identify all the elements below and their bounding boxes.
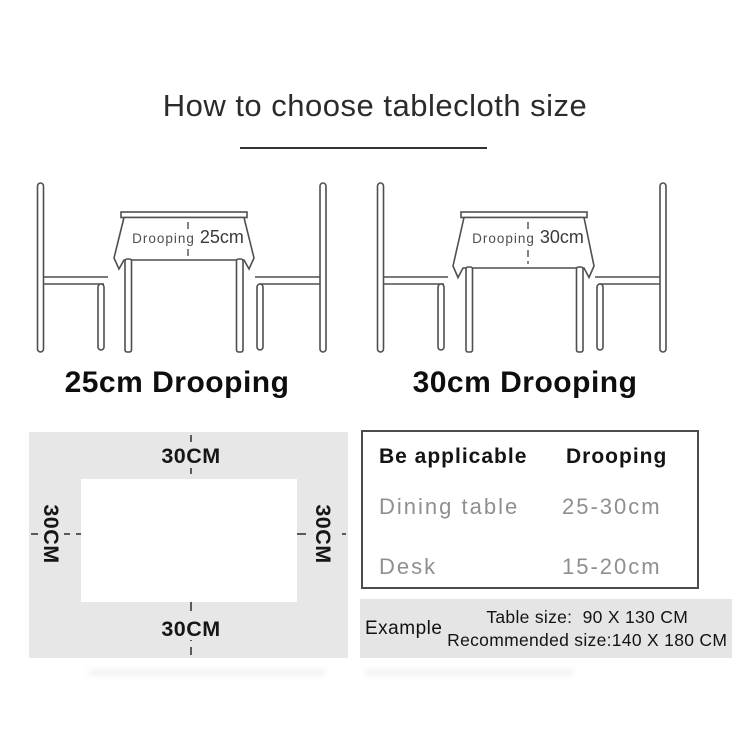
- right-chair-icon: [595, 183, 666, 352]
- tablecloth-size-infographic: How to choose tablecloth size Drooping25…: [0, 0, 750, 750]
- table-illustration-30cm: Drooping30cm: [365, 180, 670, 355]
- example-table-size: Table size: 90 X 130 CM: [486, 607, 688, 628]
- example-label: Example: [360, 618, 442, 640]
- left-chair-icon: [38, 183, 109, 352]
- tabletop-area: [81, 479, 297, 602]
- margin-label-left: 30CM: [39, 504, 63, 563]
- table-illustration-25cm: Drooping25cm: [25, 180, 330, 355]
- example-recommended-size: Recommended size:140 X 180 CM: [447, 630, 727, 651]
- faint-watermark-smudge: [364, 669, 574, 676]
- drooping-spec-table: Be applicable Drooping Dining table 25-3…: [361, 430, 699, 589]
- caption-30cm-drooping: 30cm Drooping: [375, 366, 675, 400]
- caption-25cm-drooping: 25cm Drooping: [27, 366, 327, 400]
- spec-row-desk-value: 15-20cm: [562, 554, 662, 580]
- right-chair-icon: [255, 183, 326, 352]
- title-underline: [240, 147, 487, 149]
- faint-watermark-smudge: [88, 669, 326, 676]
- margin-label-top: 30CM: [161, 444, 220, 468]
- spec-header-drooping: Drooping: [566, 445, 667, 469]
- spec-header-applicable: Be applicable: [379, 445, 527, 469]
- page-title: How to choose tablecloth size: [0, 88, 750, 124]
- spec-row-desk: Desk: [379, 554, 437, 580]
- margin-size-diagram: 30CM 30CM 30CM 30CM: [29, 432, 348, 658]
- spec-row-dining-table: Dining table: [379, 494, 519, 520]
- example-lines: Table size: 90 X 130 CM Recommended size…: [442, 607, 732, 651]
- table-with-cloth-icon: Drooping30cm: [453, 212, 594, 352]
- table-with-cloth-icon: Drooping25cm: [114, 212, 254, 352]
- example-panel: Example Table size: 90 X 130 CM Recommen…: [360, 599, 732, 658]
- left-chair-icon: [378, 183, 449, 352]
- margin-label-bottom: 30CM: [161, 617, 220, 641]
- margin-label-right: 30CM: [311, 504, 335, 563]
- spec-row-dining-table-value: 25-30cm: [562, 494, 662, 520]
